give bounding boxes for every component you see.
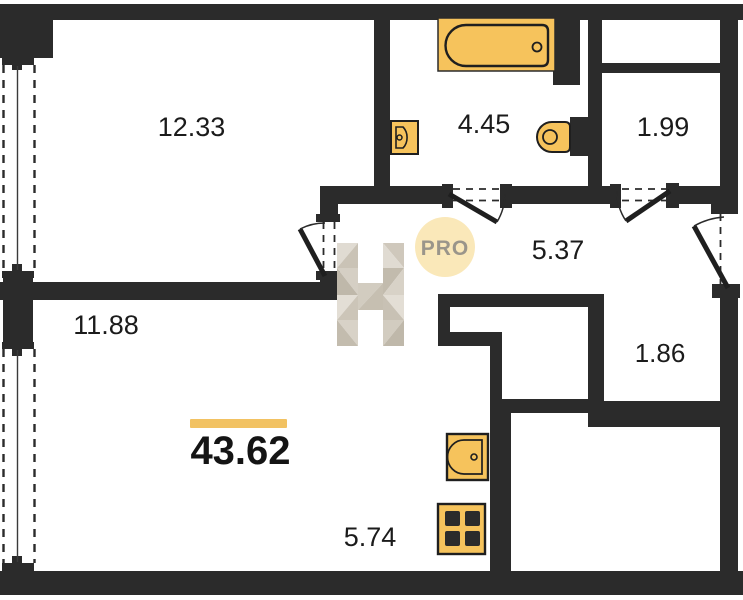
wall-niche-step <box>438 332 490 346</box>
window-bedroom <box>4 65 35 271</box>
wall-bedroom-bathroom <box>374 4 390 204</box>
wall-kitchen-lower <box>490 399 511 595</box>
wall-right-lower <box>720 286 738 595</box>
room-area-label-bathroom: 4.45 <box>434 110 534 138</box>
entrance-threshold-bottom <box>712 284 740 298</box>
storage-door <box>617 189 670 221</box>
room-area-label-bedroom: 12.33 <box>139 113 244 141</box>
window-sill-mid-bottom <box>2 342 34 349</box>
window-living <box>4 349 35 563</box>
room-area-label-hallway: 5.37 <box>508 236 608 264</box>
wall-bathtub-side <box>553 4 580 85</box>
entrance-threshold-top <box>711 204 738 214</box>
window-nub-top-left <box>12 63 22 70</box>
wall-niche-right <box>588 294 604 414</box>
wall-top-left-pier <box>0 4 53 58</box>
room-area-label-kitchen: 5.74 <box>320 523 420 551</box>
wall-bottom <box>0 571 743 595</box>
wall-bathroom-storage <box>588 4 602 204</box>
wall-toilet-backing <box>570 117 590 156</box>
wall-bedroom-living-divider <box>0 282 338 300</box>
door-hinge-nub <box>442 184 453 208</box>
bath-sink-icon <box>391 121 418 154</box>
room-area-label-wardrobe: 1.86 <box>610 340 710 367</box>
window-nub-mid-top <box>12 264 22 271</box>
wall-hall-north-b <box>502 186 620 204</box>
wall-wardrobe-bottom <box>588 401 738 427</box>
wall-top <box>0 4 743 20</box>
bathtub-icon <box>438 18 555 71</box>
total-area-highlight-bar <box>190 419 287 428</box>
door-hinge-nub <box>316 271 340 280</box>
bathroom-door <box>449 189 505 222</box>
wall-hall-north-a <box>320 186 452 204</box>
entrance-door <box>694 214 728 288</box>
pro-badge: PRO <box>415 217 475 277</box>
window-nub-bottom-left <box>12 556 22 563</box>
pro-badge-text: PRO <box>421 237 470 260</box>
plan-graphics: PRO <box>0 0 743 600</box>
bedroom-door <box>300 222 335 276</box>
door-hinge-nub <box>666 183 679 208</box>
door-hinge-nub <box>610 184 621 208</box>
h-logo-watermark <box>337 243 404 346</box>
room-area-label-living: 11.88 <box>46 311 166 339</box>
wall-kitchen-upper <box>490 332 502 402</box>
window-nub-mid-bottom <box>12 349 22 356</box>
wall-right-upper <box>720 4 738 214</box>
wall-niche-top <box>438 294 604 307</box>
room-area-label-storage: 1.99 <box>613 113 713 141</box>
stove-icon <box>438 504 485 554</box>
window-sill-bottom-left <box>2 563 34 571</box>
door-hinge-nub <box>316 214 340 222</box>
wall-storage-divider <box>602 63 720 73</box>
kitchen-sink-icon <box>447 434 488 480</box>
door-hinge-nub <box>500 184 512 208</box>
floor-plan: PRO 12.33 4.45 1.99 5.37 1.86 11.88 5.74… <box>0 0 743 600</box>
total-area-label: 43.62 <box>163 431 318 471</box>
toilet-icon <box>537 122 570 152</box>
